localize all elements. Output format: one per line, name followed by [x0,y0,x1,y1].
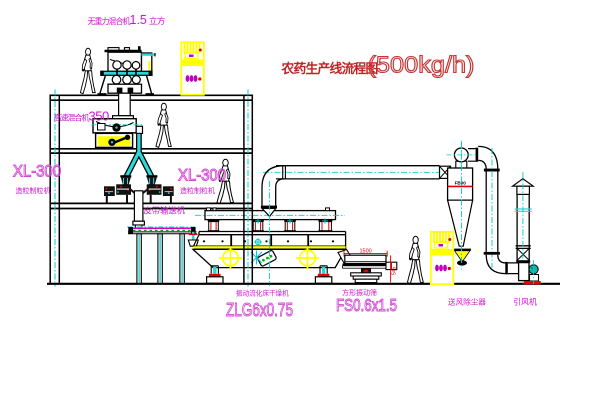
svg-text:振动流化床干燥机: 振动流化床干燥机 [236,289,289,298]
svg-text:造粒制粒机: 造粒制粒机 [180,186,215,195]
svg-text:造粒制粒机: 造粒制粒机 [16,186,51,195]
svg-text:皮带输送机: 皮带输送机 [144,206,186,216]
svg-text:1500: 1500 [359,249,371,255]
svg-text:高速混合机350: 高速混合机350 [54,109,109,124]
svg-text:引风机: 引风机 [513,297,537,307]
svg-text:FS0.6x1.5: FS0.6x1.5 [336,295,397,315]
svg-text:送风除尘器: 送风除尘器 [448,297,486,307]
svg-text:ZLG6x0.75: ZLG6x0.75 [226,299,293,320]
svg-text:(500kg/h): (500kg/h) [368,52,475,78]
svg-text:XL-300: XL-300 [13,162,61,181]
svg-text:无重力混合机1.5立方: 无重力混合机1.5立方 [88,13,165,27]
svg-text:545: 545 [392,266,398,275]
svg-text:FB00: FB00 [455,181,467,186]
svg-text:农药生产线流程图: 农药生产线流程图 [281,61,378,76]
svg-text:XL-300: XL-300 [178,166,226,185]
